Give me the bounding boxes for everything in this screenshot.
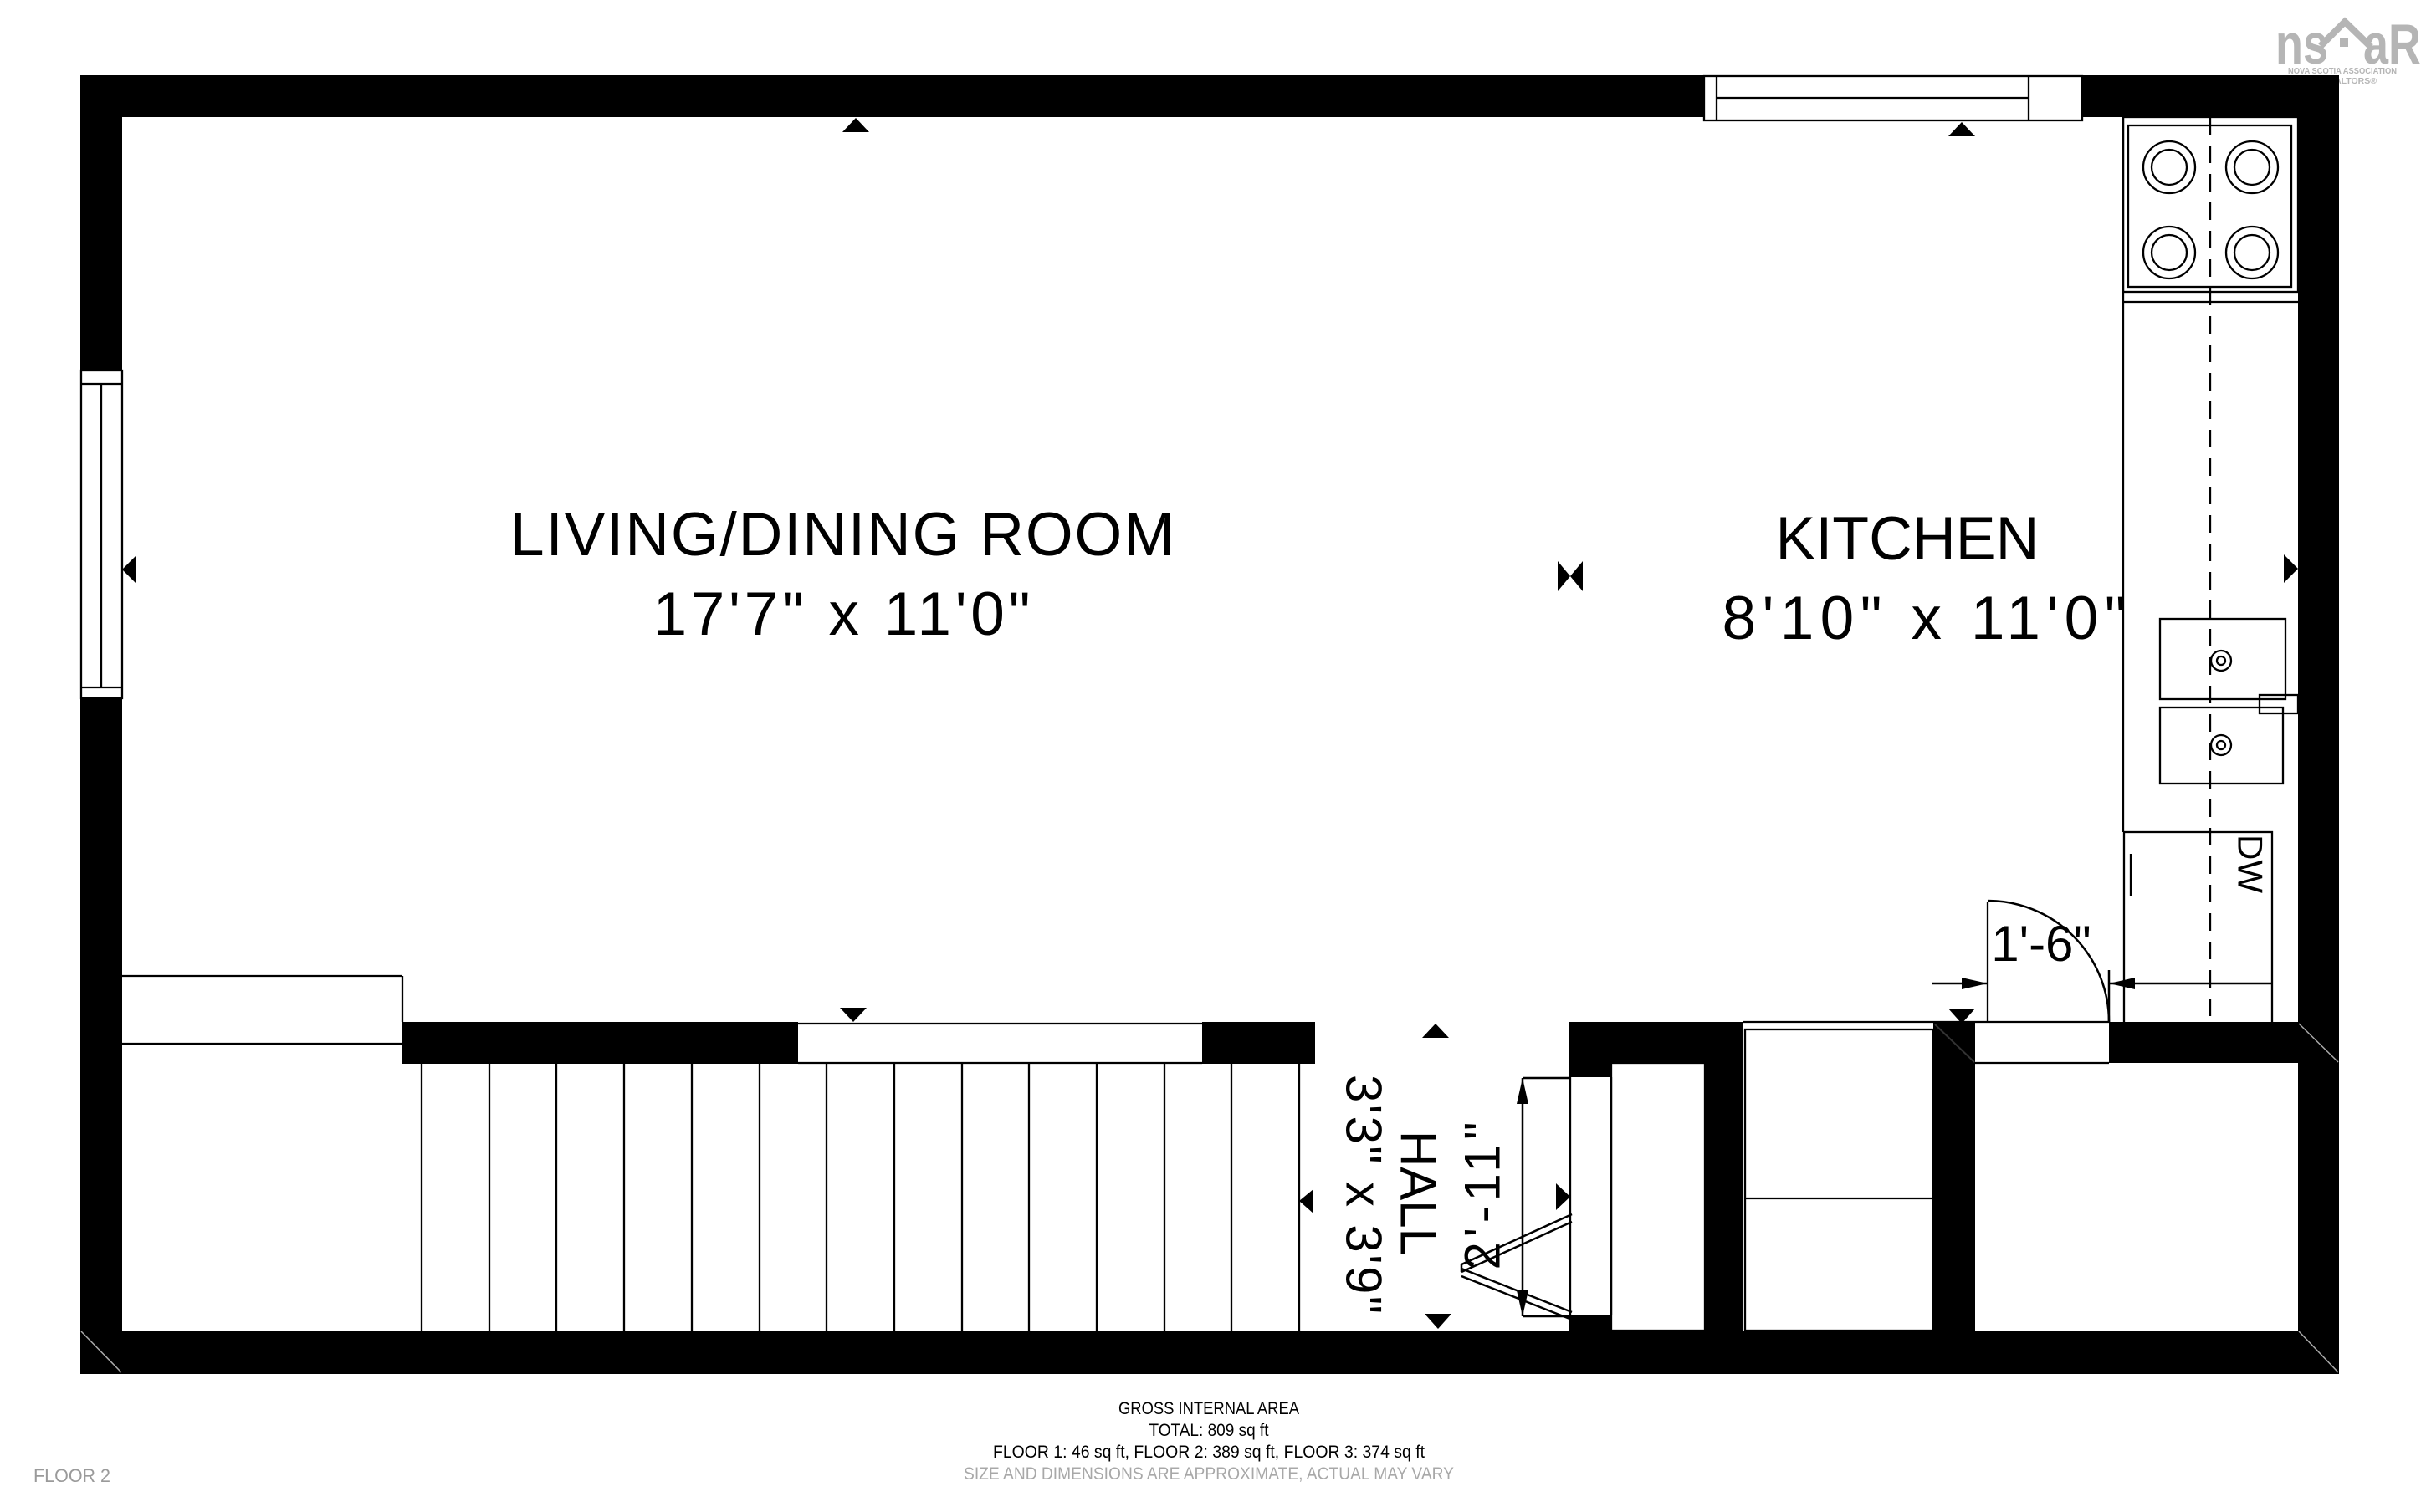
- svg-text:8'10" x 11'0": 8'10" x 11'0": [1722, 585, 2127, 652]
- svg-text:KITCHEN: KITCHEN: [1776, 505, 2040, 573]
- svg-text:FLOOR 2: FLOOR 2: [33, 1465, 110, 1486]
- svg-text:1'-6": 1'-6": [1991, 916, 2091, 972]
- svg-text:DW: DW: [2231, 835, 2270, 893]
- svg-text:FLOOR 1: 46 sq ft, FLOOR 2: 38: FLOOR 1: 46 sq ft, FLOOR 2: 389 sq ft, F…: [993, 1443, 1425, 1462]
- svg-text:GROSS INTERNAL AREA: GROSS INTERNAL AREA: [1118, 1399, 1299, 1418]
- svg-text:3'3" x 3'9": 3'3" x 3'9": [1336, 1075, 1392, 1314]
- svg-text:17'7" x 11'0": 17'7" x 11'0": [653, 580, 1031, 648]
- svg-text:NOVA SCOTIA ASSOCIATION: NOVA SCOTIA ASSOCIATION: [2288, 67, 2397, 76]
- svg-text:LIVING/DINING ROOM: LIVING/DINING ROOM: [510, 501, 1175, 569]
- svg-text:HALL: HALL: [1390, 1131, 1446, 1256]
- svg-text:TOTAL: 809 sq ft: TOTAL: 809 sq ft: [1149, 1421, 1269, 1440]
- svg-text:SIZE AND DIMENSIONS ARE APPROX: SIZE AND DIMENSIONS ARE APPROXIMATE, ACT…: [964, 1464, 1454, 1484]
